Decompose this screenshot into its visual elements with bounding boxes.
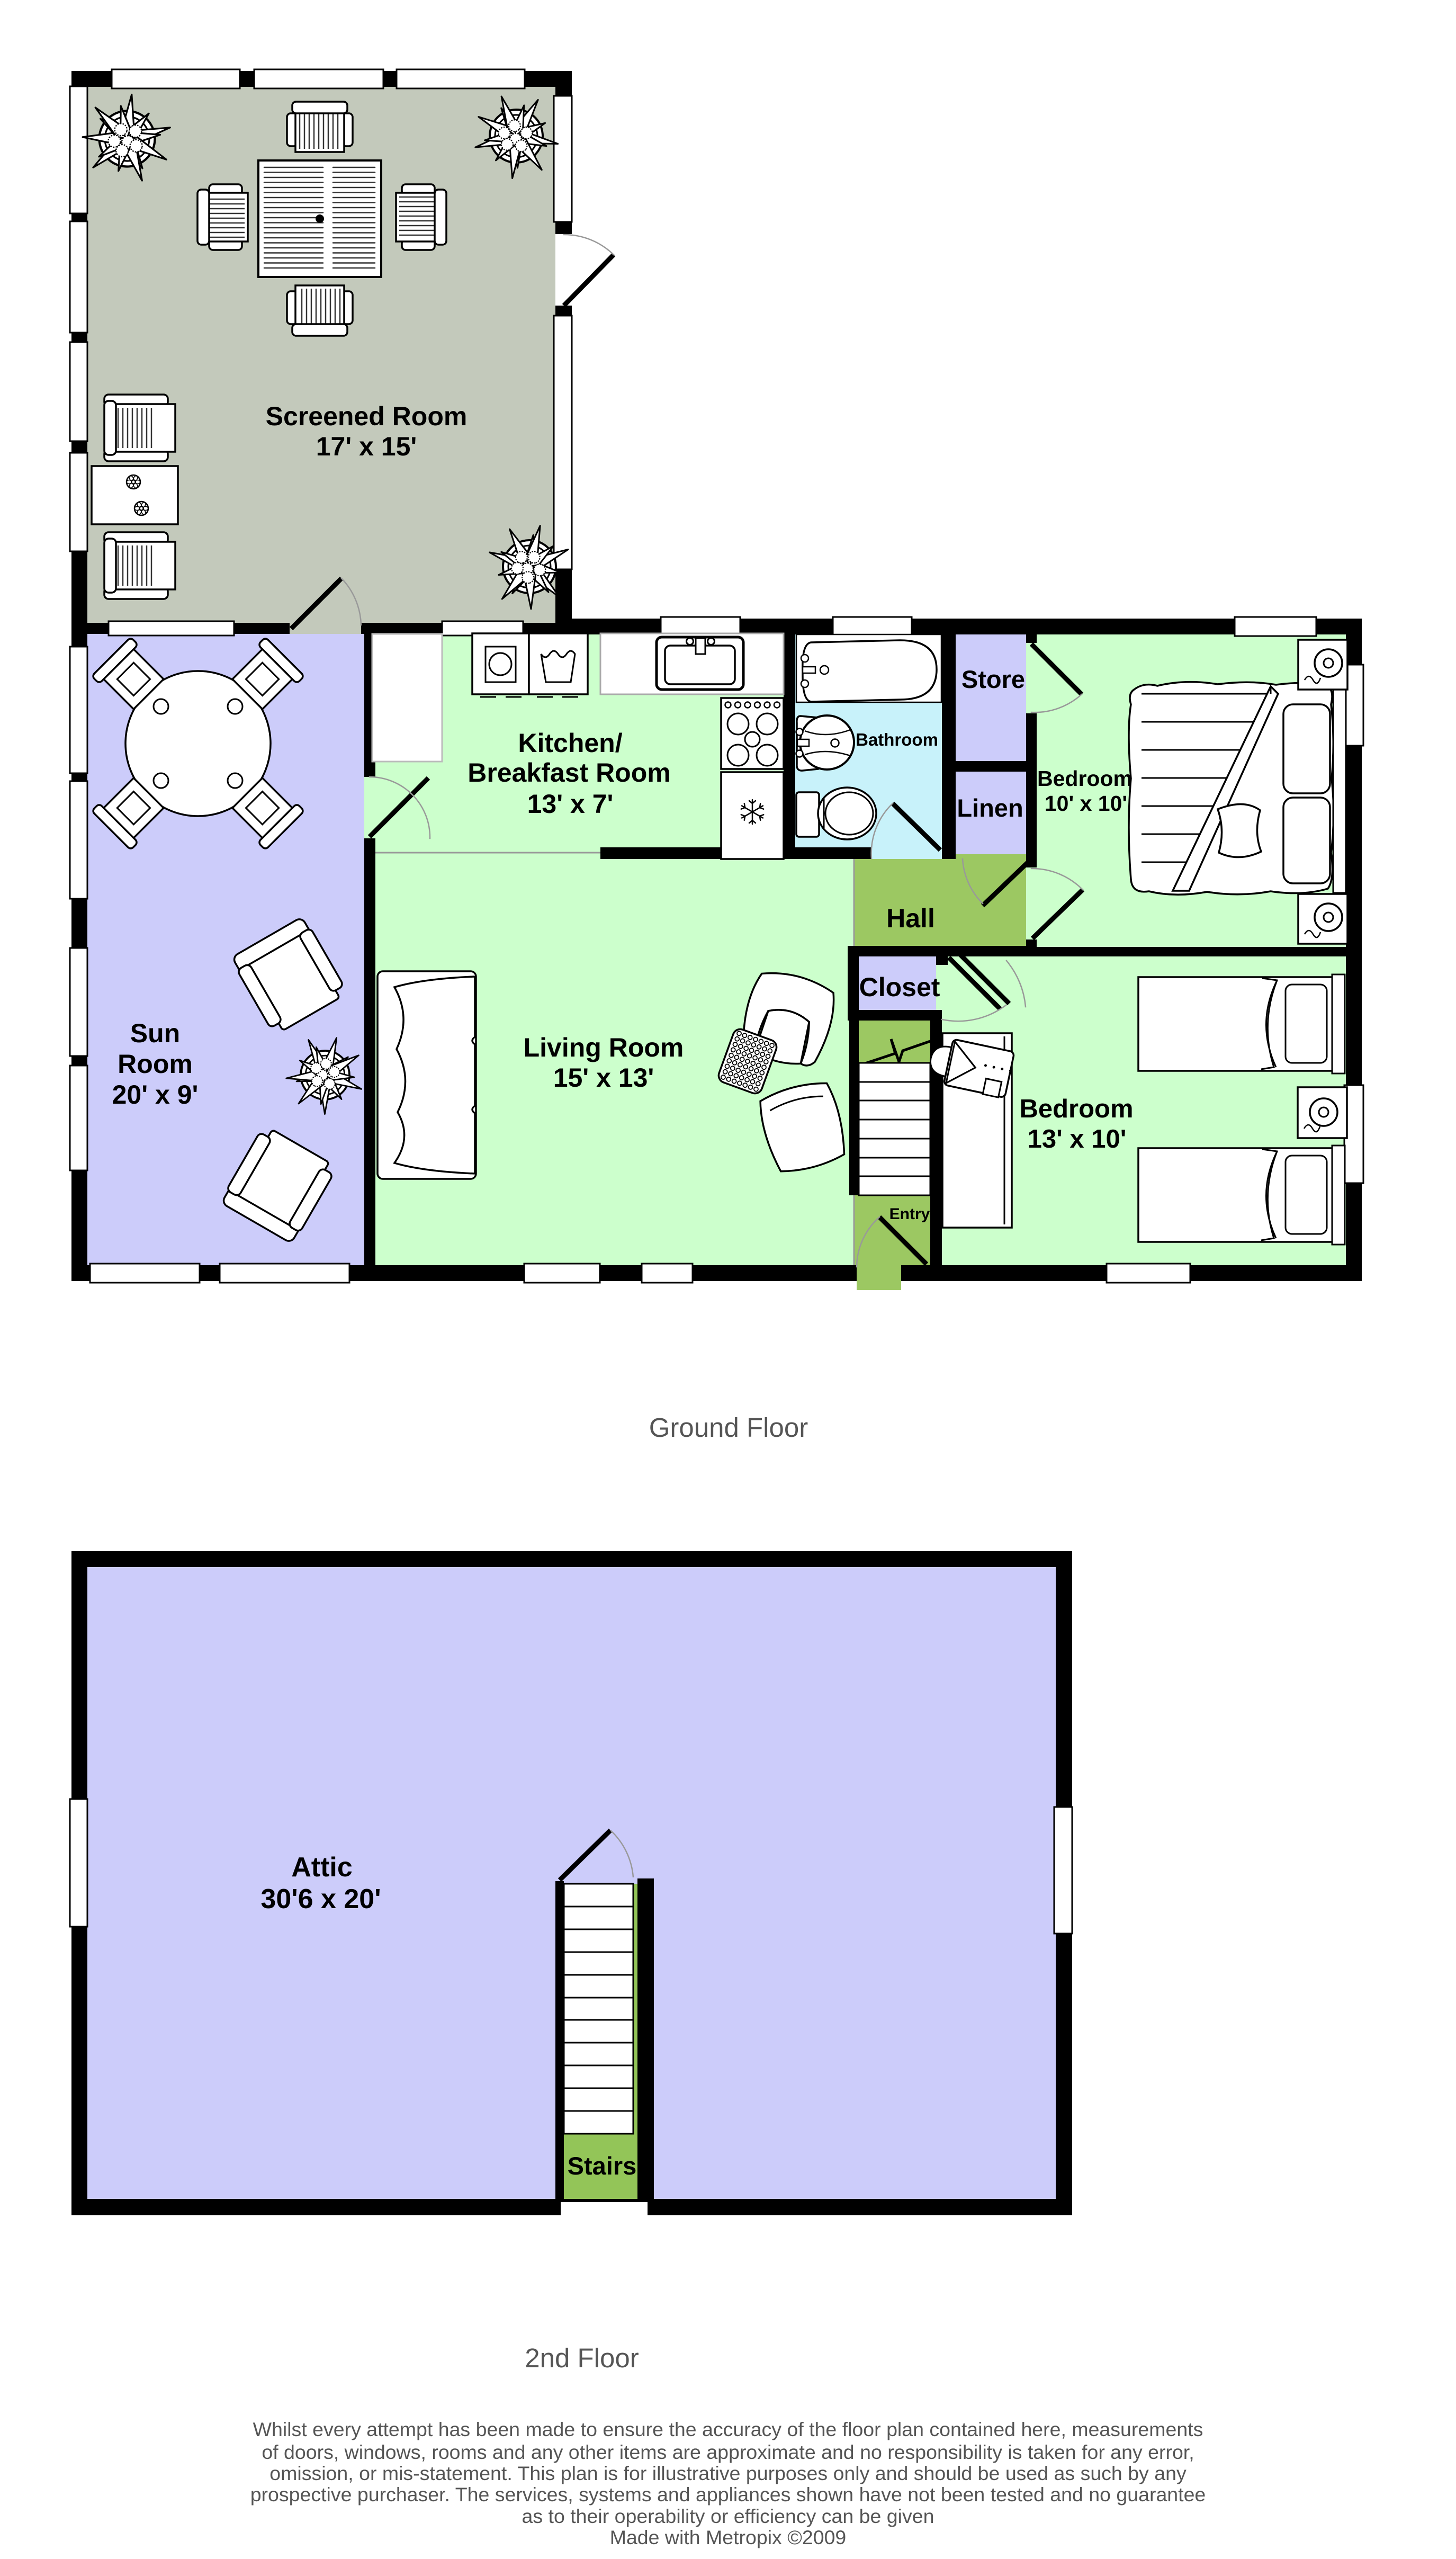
svg-text:Hall: Hall: [886, 903, 935, 933]
svg-text:Ground Floor: Ground Floor: [649, 1412, 808, 1443]
svg-text:Attic: Attic: [291, 1852, 353, 1883]
svg-text:2nd Floor: 2nd Floor: [525, 2343, 639, 2373]
svg-text:as to their operability or eff: as to their operability or efficiency ca…: [522, 2505, 934, 2527]
svg-text:20' x 9': 20' x 9': [112, 1080, 199, 1110]
svg-text:13' x 7': 13' x 7': [527, 789, 614, 819]
svg-text:Stairs: Stairs: [568, 2152, 637, 2180]
svg-text:Bedroom: Bedroom: [1019, 1095, 1133, 1123]
svg-text:prospective purchaser. The ser: prospective purchaser. The services, sys…: [250, 2483, 1206, 2506]
svg-text:of doors, windows, rooms and a: of doors, windows, rooms and any other i…: [262, 2441, 1194, 2463]
svg-text:Made with Metropix ©2009: Made with Metropix ©2009: [610, 2526, 847, 2548]
svg-text:Whilst every attempt has been: Whilst every attempt has been made to en…: [253, 2418, 1203, 2440]
svg-text:Breakfast Room: Breakfast Room: [468, 758, 670, 788]
svg-text:Bedroom: Bedroom: [1037, 766, 1133, 791]
svg-text:Store: Store: [961, 665, 1025, 693]
svg-text:Screened Room: Screened Room: [266, 401, 468, 431]
svg-text:30'6 x 20': 30'6 x 20': [260, 1884, 381, 1914]
svg-text:17' x 15': 17' x 15': [316, 432, 417, 461]
svg-text:omission, or mis-statement. Th: omission, or mis-statement. This plan is…: [269, 2462, 1187, 2484]
svg-text:Linen: Linen: [957, 794, 1023, 822]
svg-text:Bathroom: Bathroom: [856, 730, 938, 749]
svg-text:Closet: Closet: [859, 972, 940, 1002]
svg-text:Entry: Entry: [889, 1205, 930, 1223]
svg-text:15' x 13': 15' x 13': [553, 1063, 654, 1093]
svg-text:Room: Room: [118, 1049, 193, 1079]
svg-text:13' x 10': 13' x 10': [1028, 1125, 1127, 1153]
svg-text:Sun: Sun: [130, 1018, 180, 1048]
svg-text:10' x 10': 10' x 10': [1045, 791, 1127, 816]
svg-text:Kitchen/: Kitchen/: [518, 728, 622, 758]
svg-text:Living Room: Living Room: [524, 1033, 684, 1062]
